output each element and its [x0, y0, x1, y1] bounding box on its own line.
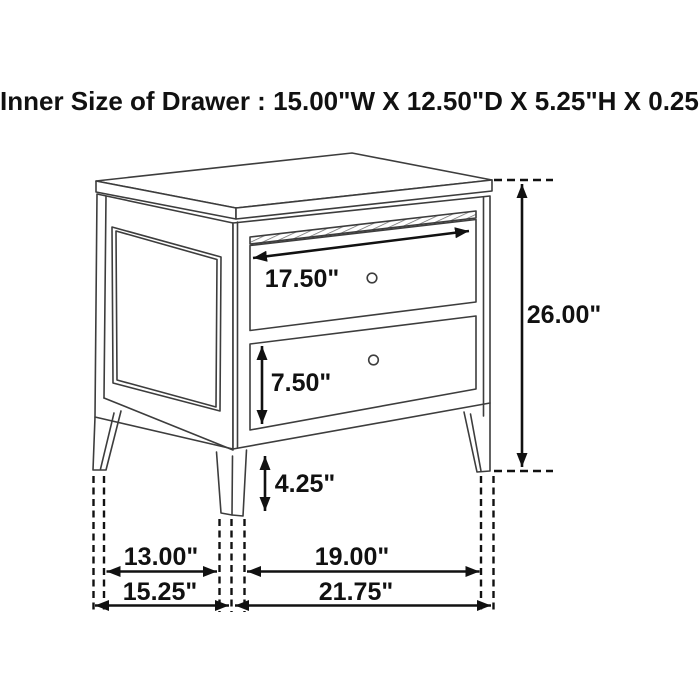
label-top-drawer-width: 17.50"	[265, 265, 339, 293]
label-leg-height: 4.25"	[275, 470, 336, 498]
nightstand-dimension-diagram: 17.50" 7.50" 4.25" 26.00" 13.00" 19.00" …	[0, 0, 700, 700]
side-panel	[95, 194, 233, 450]
drawer-2-knob	[369, 355, 379, 365]
label-side-leg-spacing: 13.00"	[124, 543, 198, 571]
right-front-leg	[464, 403, 490, 472]
label-front-leg-spacing: 19.00"	[315, 543, 389, 571]
label-overall-height: 26.00"	[527, 301, 601, 329]
label-overall-width: 21.75"	[319, 578, 393, 606]
dimension-diagram-page: Inner Size of Drawer : 15.00"W X 12.50"D…	[0, 0, 700, 700]
label-bottom-drawer-height: 7.50"	[271, 369, 332, 397]
label-overall-depth: 15.25"	[123, 578, 197, 606]
nightstand-drawing	[93, 153, 492, 516]
drawer-1-knob	[367, 273, 377, 283]
center-front-leg	[217, 450, 247, 516]
